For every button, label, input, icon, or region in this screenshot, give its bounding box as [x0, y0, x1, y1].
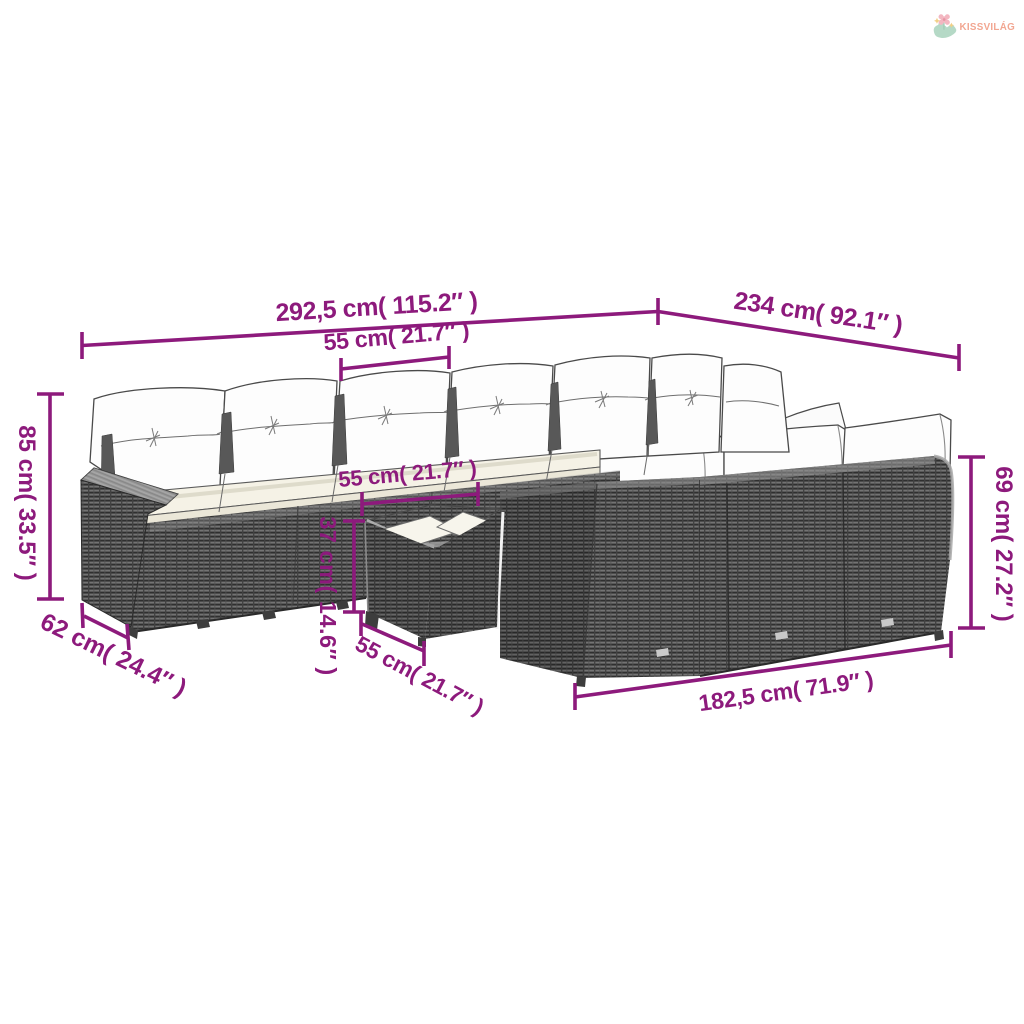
svg-text:85 cm( 33.5″ ): 85 cm( 33.5″ ): [13, 425, 40, 581]
svg-text:37 cm( 14.6″ ): 37 cm( 14.6″ ): [315, 516, 341, 675]
svg-text:69 cm( 27.2″ ): 69 cm( 27.2″ ): [990, 466, 1017, 622]
svg-text:KISSVILÁG: KISSVILÁG: [960, 21, 1016, 33]
